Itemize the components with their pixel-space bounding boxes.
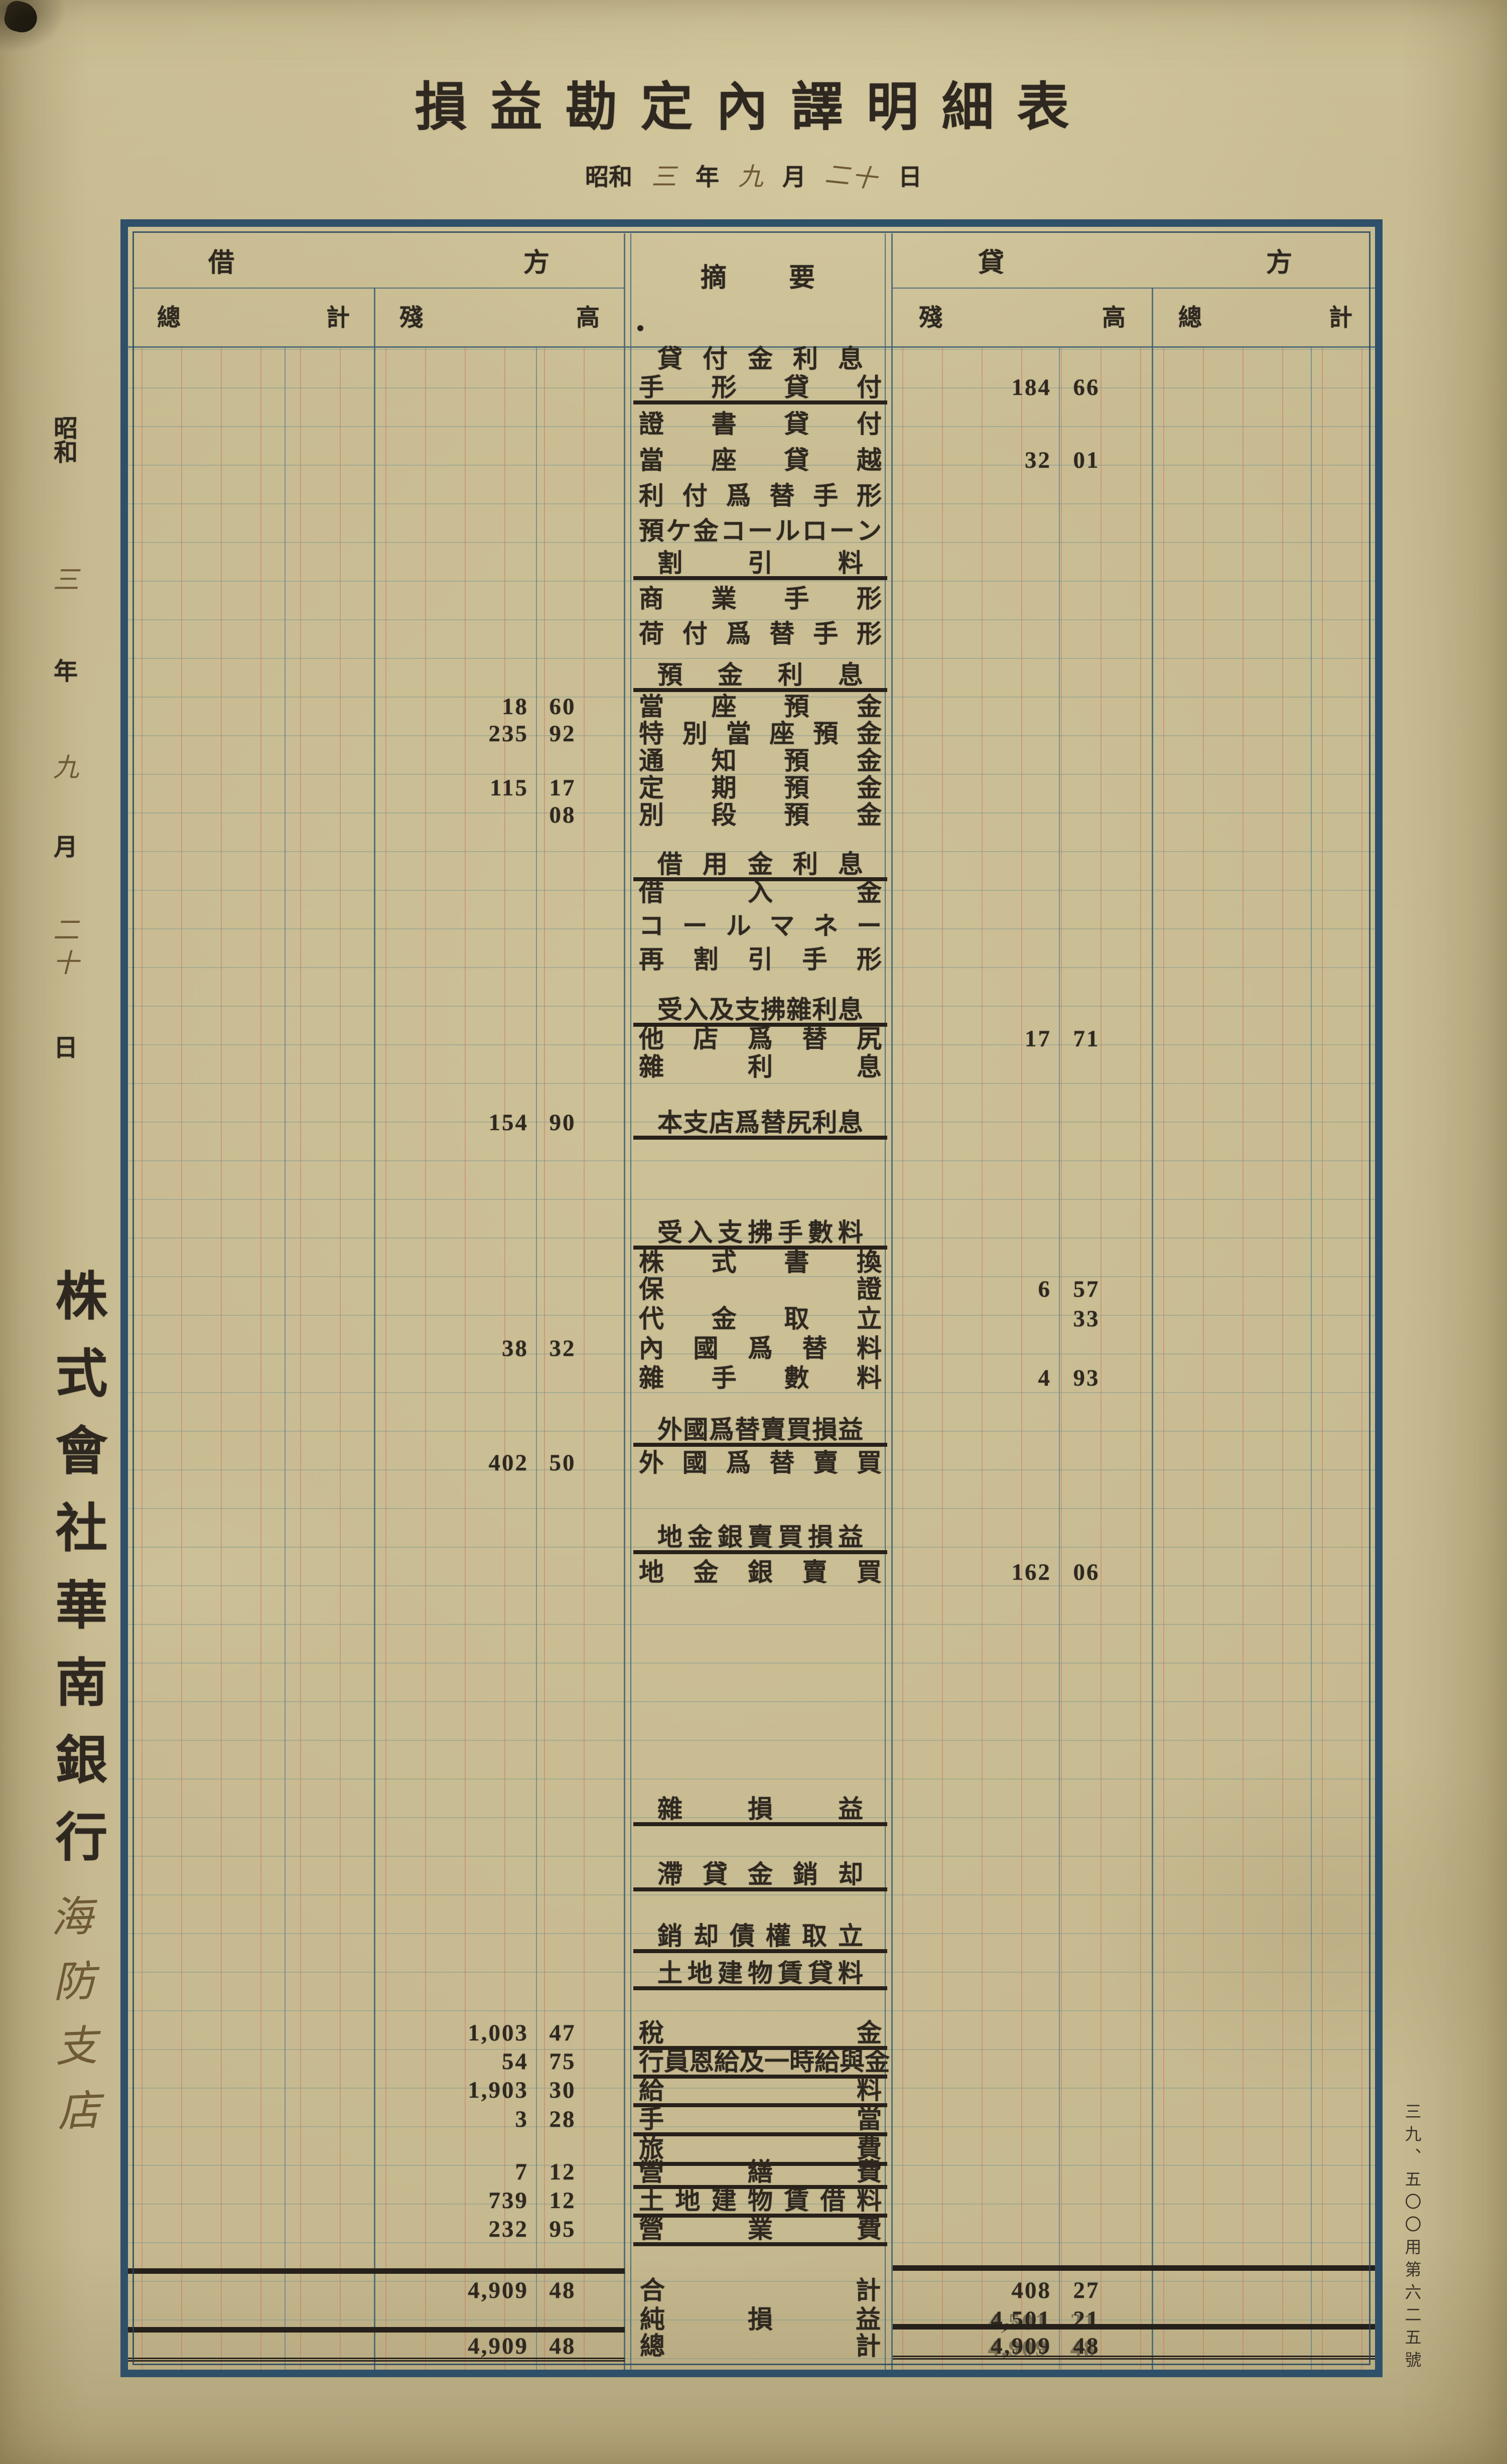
margin-date-day-handwritten: 二十 xyxy=(49,916,77,982)
date-month-label: 月 xyxy=(782,158,806,192)
margin-date-era: 昭和 xyxy=(50,416,76,464)
page-title: 損益勘定內譯明細表 xyxy=(0,64,1507,140)
date-month-handwritten: 九 xyxy=(738,157,763,193)
table-frame-inner-line xyxy=(132,231,1371,2365)
date-line: 昭和 三 年 九 月 二十 日 xyxy=(0,157,1507,193)
date-day-handwritten: 二十 xyxy=(824,154,881,196)
scan-artifact xyxy=(2,0,41,36)
margin-date-year-label: 年 xyxy=(50,658,76,682)
table-frame xyxy=(120,219,1383,2377)
company-name: 株式會社華南銀行 xyxy=(38,1269,114,1887)
margin-date-month-label: 月 xyxy=(50,834,76,858)
margin-date-year-handwritten: 三 xyxy=(49,566,77,592)
margin-date-day-label: 日 xyxy=(50,1035,76,1059)
ledger-sheet: 損益勘定內譯明細表 昭和 三 年 九 月 二十 日 借方 摘要 貸方 總計 殘高… xyxy=(0,0,1507,2464)
date-year-handwritten: 三 xyxy=(651,157,676,193)
branch-name-handwritten: 海防支店 xyxy=(37,1893,106,2154)
date-era: 昭和 xyxy=(585,158,632,192)
margin-date-month-handwritten: 九 xyxy=(49,753,77,779)
form-number: 三九、五〇〇用第六二五號 xyxy=(1399,2103,1423,2374)
date-day-label: 日 xyxy=(898,158,922,192)
date-year-label: 年 xyxy=(696,158,719,192)
margin-date: 昭和 三 年 九 月 二十 日 xyxy=(44,416,82,1059)
